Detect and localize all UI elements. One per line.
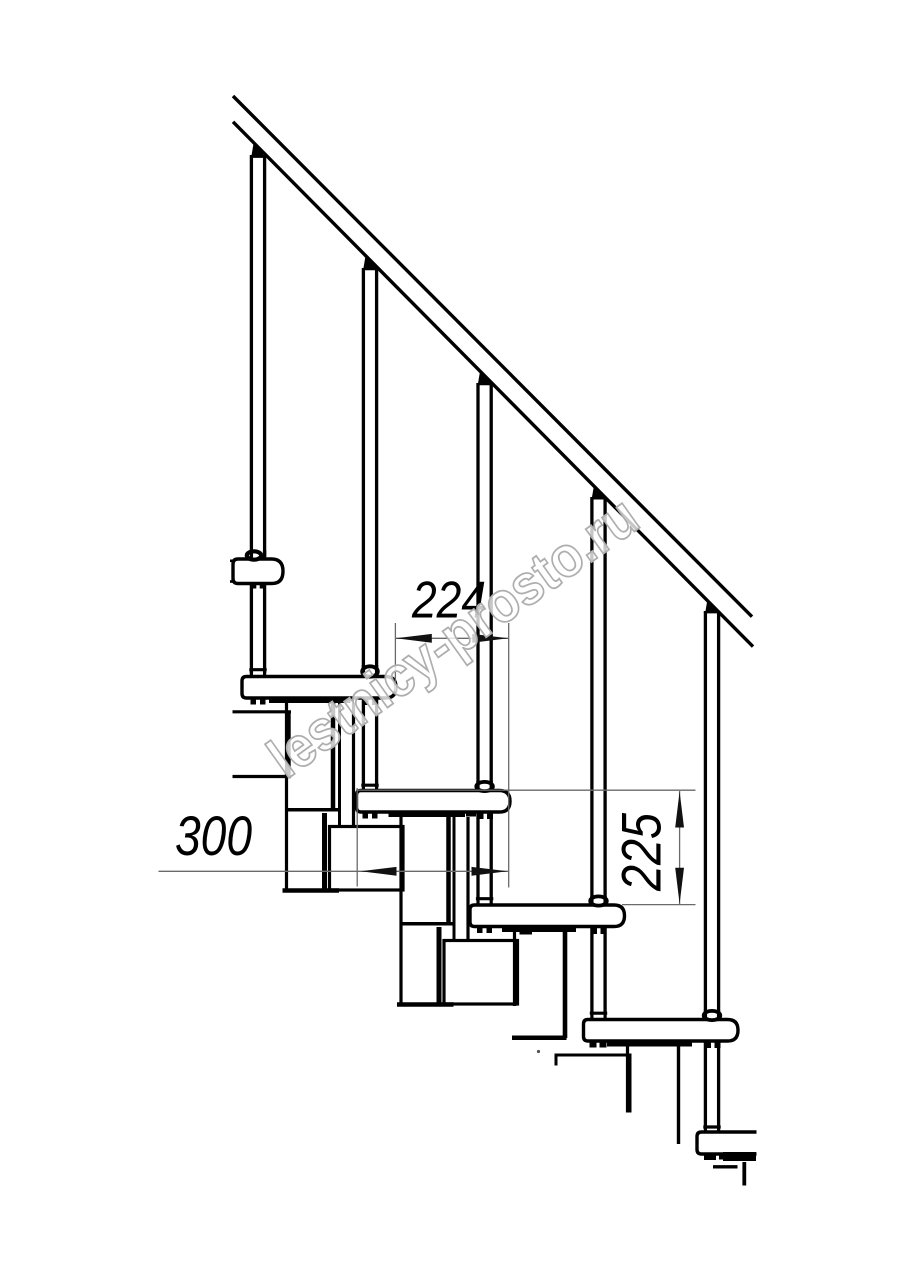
svg-text:225: 225 [610,812,673,892]
svg-text:300: 300 [175,804,252,867]
